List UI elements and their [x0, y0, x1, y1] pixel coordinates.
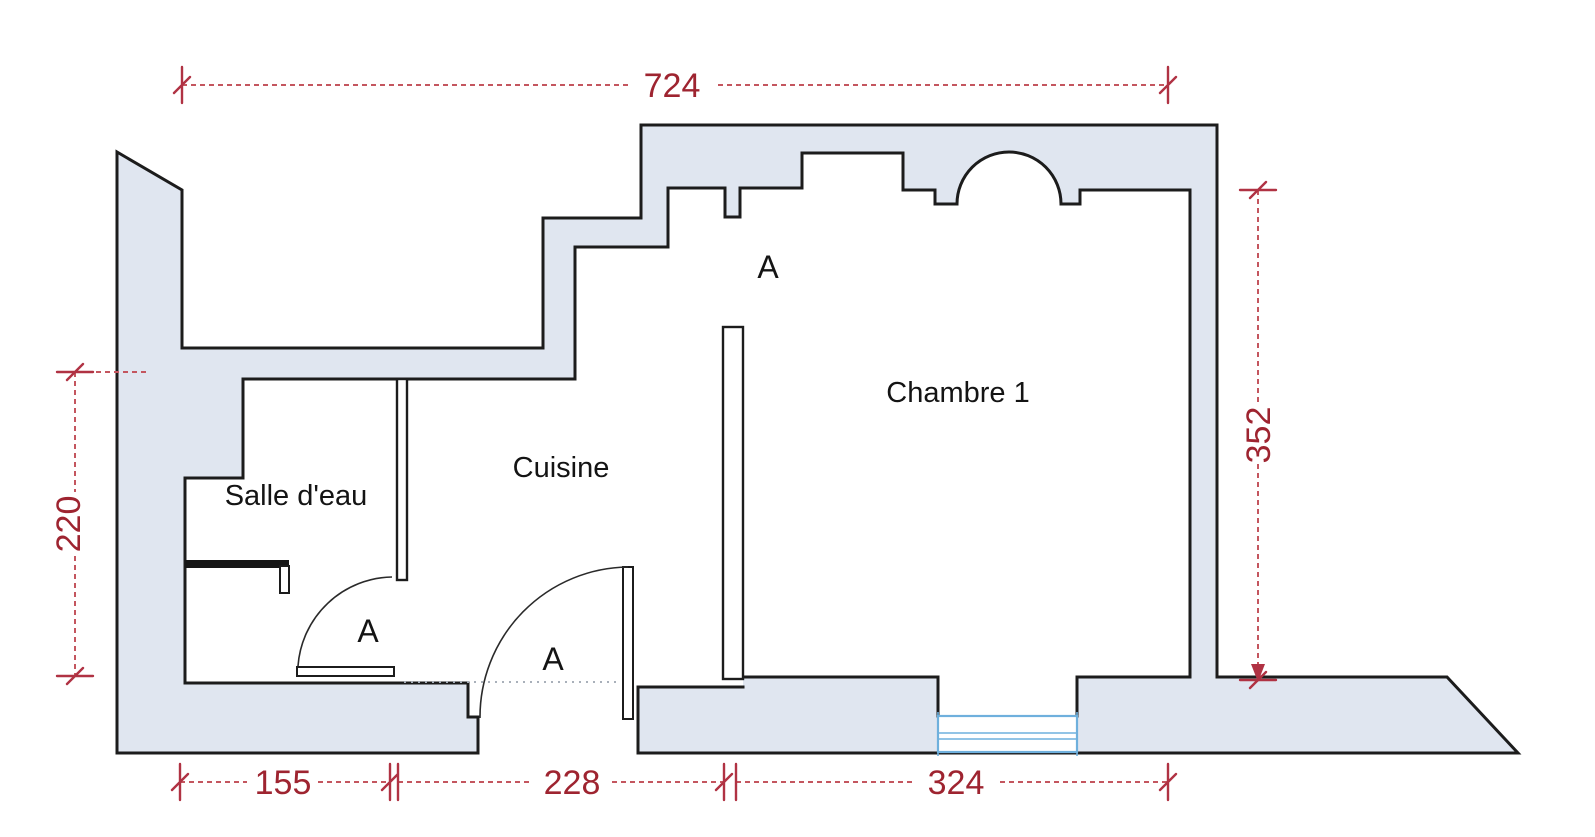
room-label-salle-deau: Salle d'eau	[225, 480, 368, 512]
partition-cuisine-chambre	[723, 327, 743, 679]
dimension-top: 724	[174, 67, 1176, 105]
partition-salle-deau-cuisine	[397, 379, 407, 580]
door-leaf-entrance	[623, 567, 633, 719]
dimension-bottom-right-value: 324	[928, 764, 985, 802]
door-label-entrance: A	[542, 641, 564, 677]
dimension-right-value: 352	[1240, 407, 1278, 464]
walls	[117, 125, 1518, 753]
dimension-top-value: 724	[644, 67, 701, 105]
door-label-salle-deau: A	[357, 613, 379, 649]
dimension-bottom: 155 228 324	[172, 764, 1176, 802]
window-frame	[938, 716, 1077, 752]
floor-plan-canvas: 724 352 220 155 228 324 Salle d'eau Cuis…	[0, 0, 1595, 837]
dimension-right: 352	[1240, 182, 1278, 688]
room-label-chambre-1: Chambre 1	[886, 377, 1029, 409]
dimension-left-value: 220	[50, 496, 88, 553]
dimension-bottom-left-value: 155	[255, 764, 312, 802]
salle-deau-bottom-wall	[185, 560, 289, 568]
salle-deau-door-jamb	[280, 566, 289, 593]
door-label-chambre: A	[757, 249, 779, 285]
scanned-floor-plan-page: 724 352 220 155 228 324 Salle d'eau Cuis…	[0, 0, 1595, 837]
door-leaf-salle-deau	[297, 667, 394, 676]
dimension-bottom-middle-value: 228	[544, 764, 601, 802]
room-label-cuisine: Cuisine	[513, 452, 610, 484]
window-chambre	[938, 712, 1077, 756]
interior-rooms-area	[185, 152, 1190, 753]
